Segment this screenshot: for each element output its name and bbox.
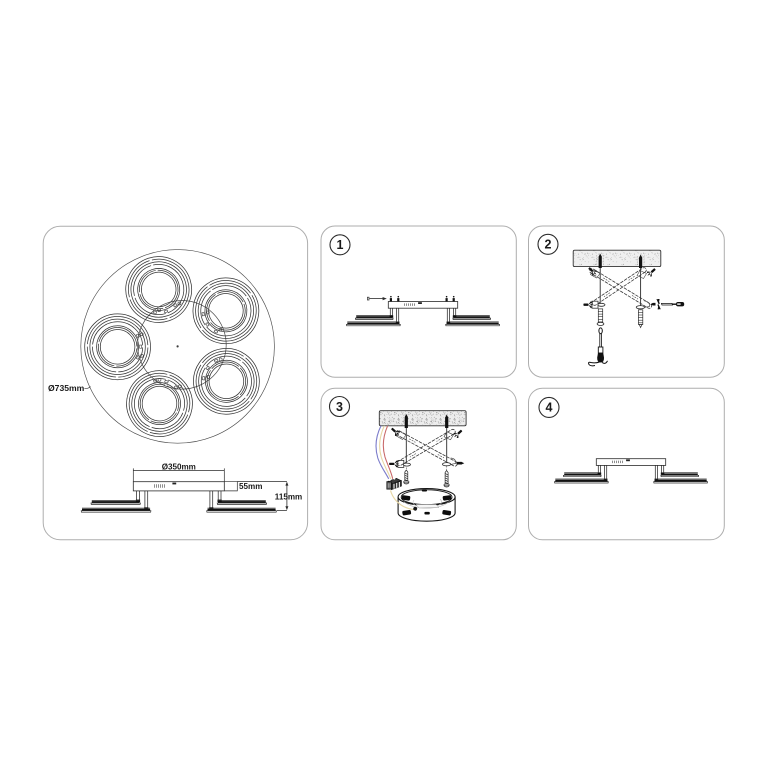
svg-text:55mm: 55mm (239, 482, 262, 491)
svg-text:4: 4 (546, 401, 553, 415)
svg-text:Ø350mm: Ø350mm (162, 462, 196, 471)
svg-text:115mm: 115mm (275, 493, 302, 502)
svg-text:Ø735mm: Ø735mm (48, 383, 85, 393)
svg-text:2: 2 (545, 238, 552, 252)
svg-text:1: 1 (337, 238, 344, 252)
svg-text:3: 3 (336, 400, 343, 414)
